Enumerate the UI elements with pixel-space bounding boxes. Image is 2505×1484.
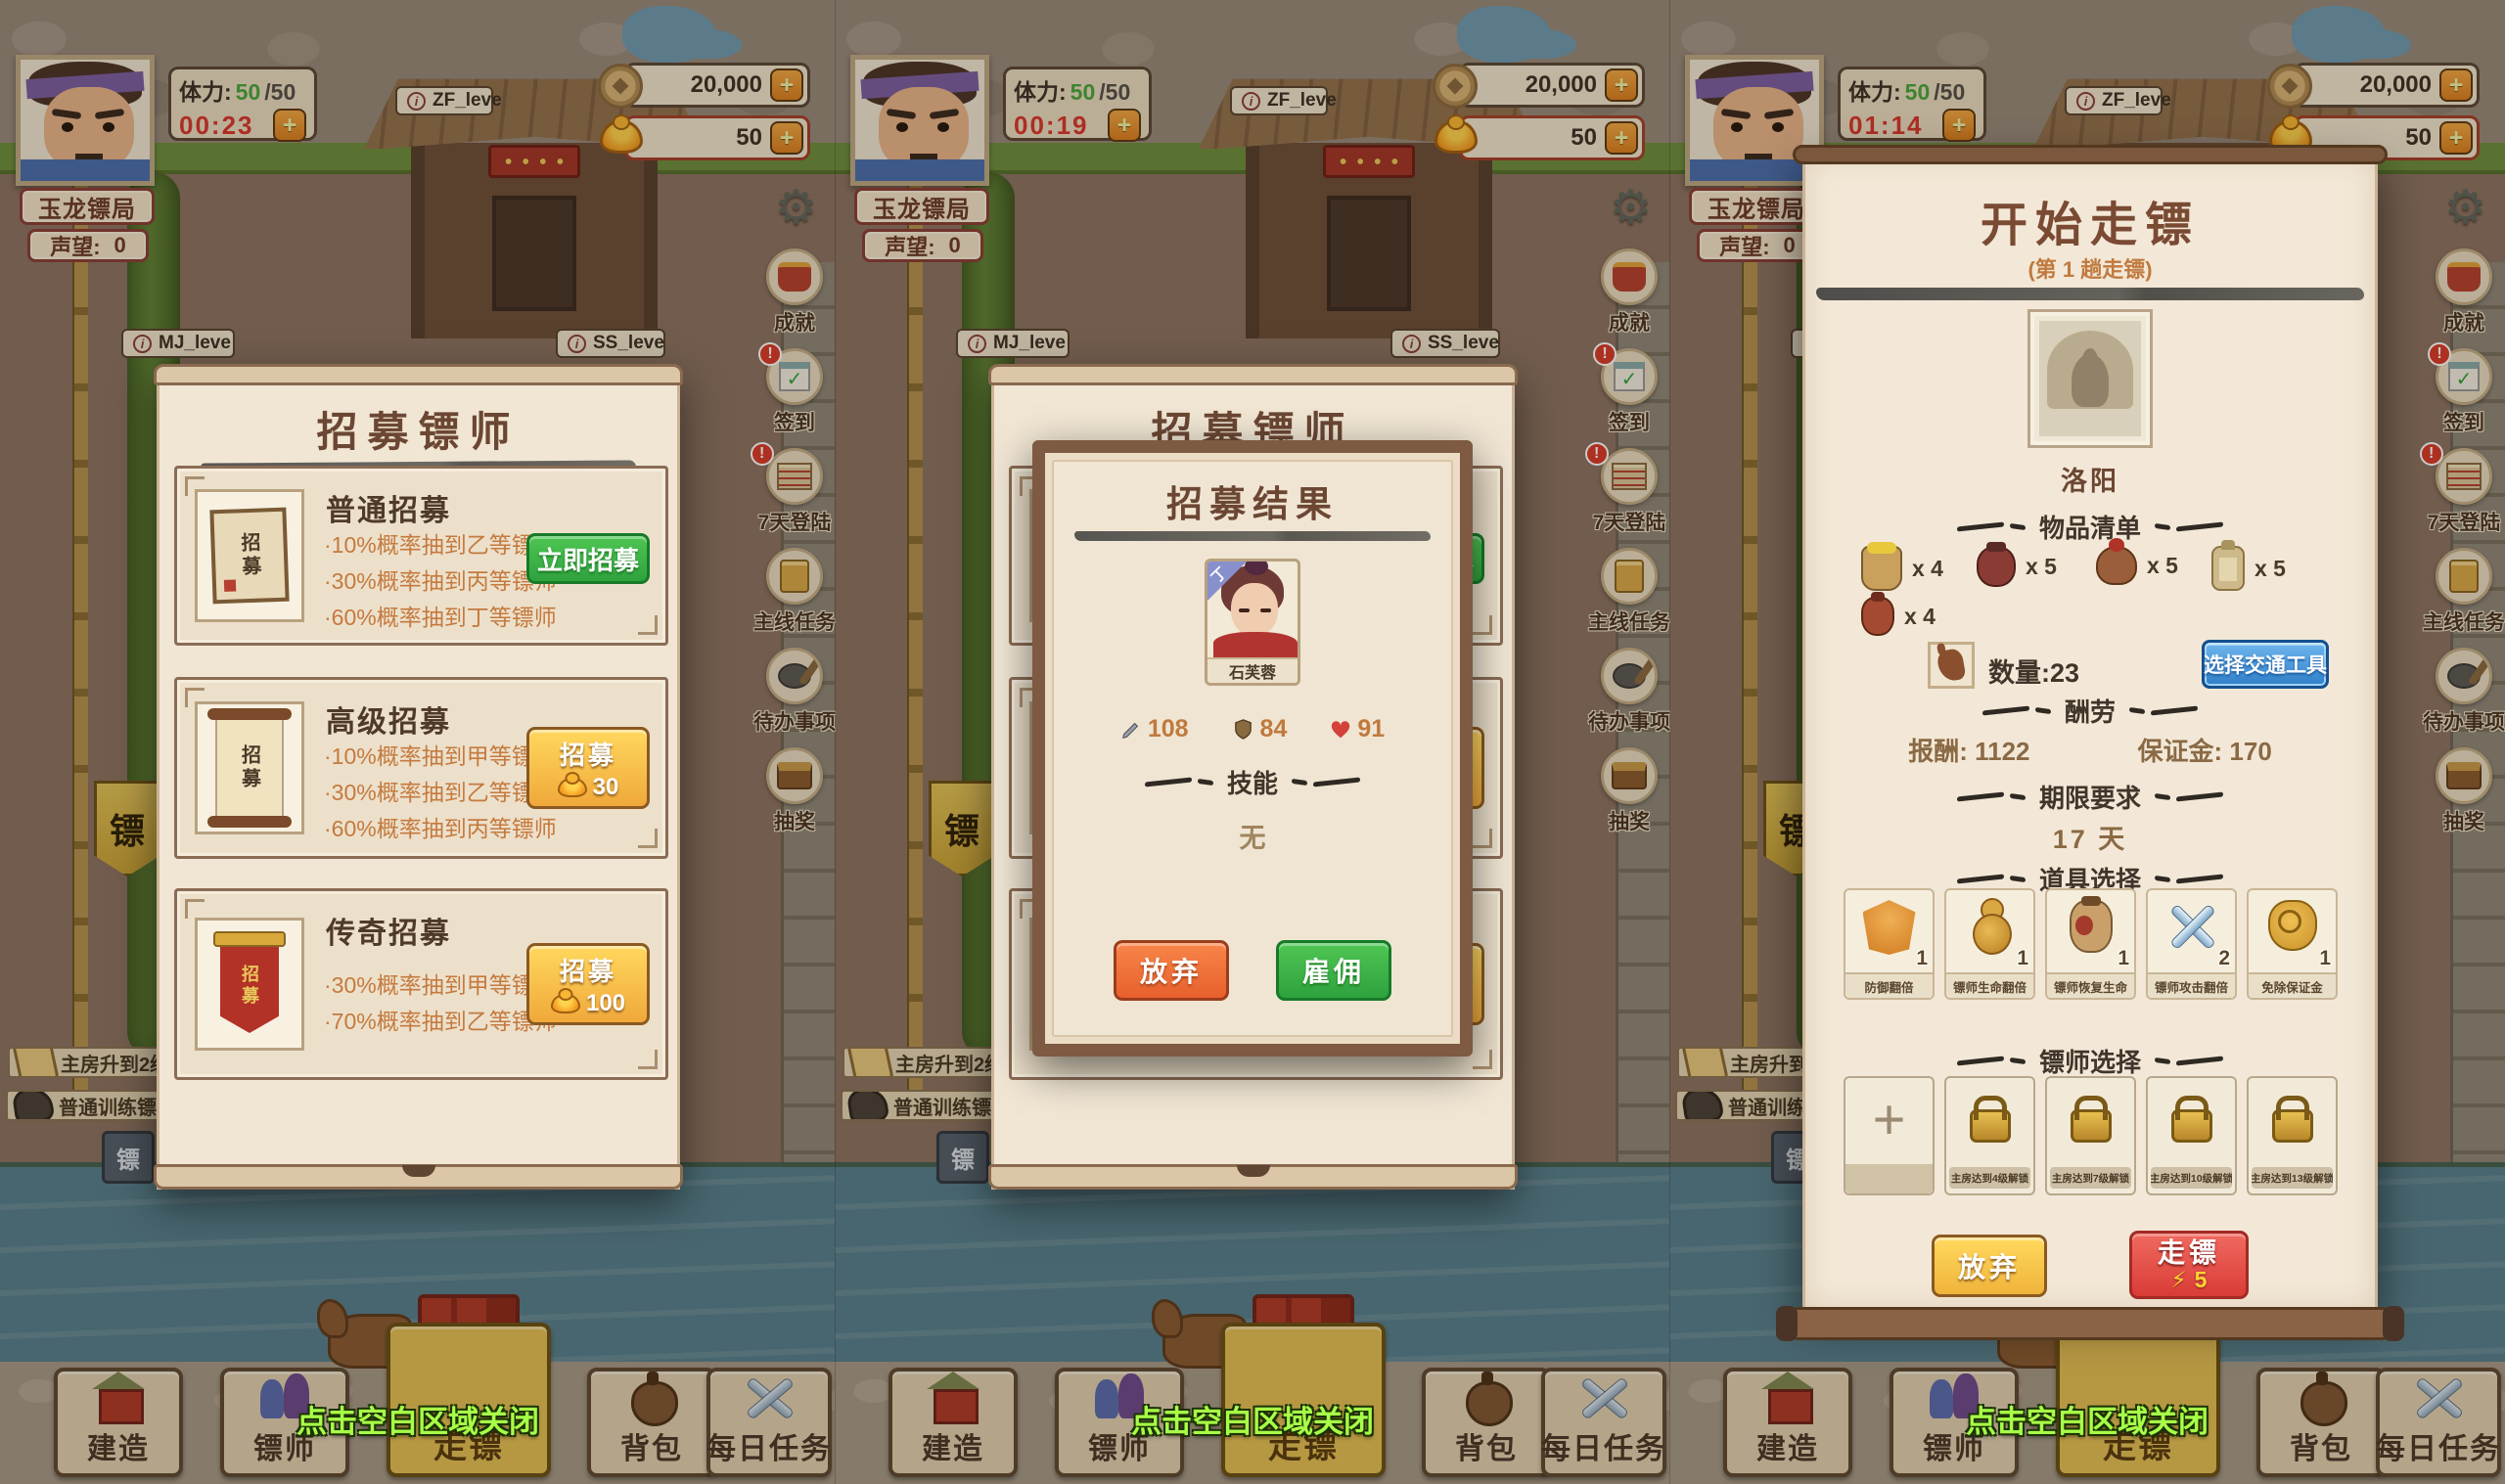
escort-card[interactable]: 丁 石芙蓉	[1205, 559, 1300, 686]
recruit-result-dialog: 招募结果 丁 石芙蓉 108 84 91	[1032, 440, 1473, 1057]
recruit-dialog: 招募镖师 招募 普通招募 ·10%概率抽到乙等镖师 ·30%概率抽到丙等镖师 ·…	[157, 368, 680, 1190]
stats-row: 108 84 91	[1045, 715, 1460, 743]
escort-slot-locked[interactable]: 主房达到13级解锁	[2247, 1076, 2338, 1195]
red-seal	[224, 580, 236, 592]
jar-icon	[1977, 546, 2016, 587]
dialog-title: 开始走镖	[1797, 186, 2384, 254]
pot-icon	[2096, 546, 2137, 585]
panel-start-escort: 镖 主房升到2级 普通训练镖师 镖 玉龙镖局 声望: 0 体力: 50 /50 …	[1669, 0, 2505, 1484]
scroll-top-edge	[988, 364, 1518, 385]
crossed-weapons-icon	[2163, 898, 2220, 955]
gold-ingot-icon	[551, 994, 580, 1013]
card-odds: ·10%概率抽到甲等镖师 ·30%概率抽到乙等镖师 ·60%概率抽到丙等镖师	[324, 739, 557, 847]
go-cost: 5	[2195, 1268, 2208, 1291]
goods-section-header: 物品清单	[1797, 509, 2384, 545]
reward-value: 报酬: 1122	[1908, 732, 2029, 768]
give-up-button[interactable]: 放弃	[1932, 1235, 2047, 1297]
deadline-value: 17 天	[1797, 818, 2384, 856]
lightning-icon: ⚡	[2171, 1268, 2187, 1291]
recruit-now-button[interactable]: 立即招募	[526, 533, 650, 584]
recruit-scroll-icon: 招募	[195, 701, 304, 834]
defense-stat: 84	[1232, 715, 1288, 743]
escort-slot-locked[interactable]: 主房达到4级解锁	[1944, 1076, 2035, 1195]
bottle-icon	[2211, 546, 2245, 591]
item-card-attack-double[interactable]: 2 镖师攻击翻倍	[2146, 888, 2237, 1000]
destination-image	[2027, 309, 2153, 448]
deposit-value: 保证金: 170	[2138, 732, 2272, 768]
small-jar-icon	[1861, 597, 1894, 636]
lock-icon	[2272, 1109, 2313, 1143]
sack-icon	[1861, 546, 1902, 591]
scroll-bottom-edge	[988, 1164, 1518, 1190]
card-title: 传奇招募	[326, 909, 451, 952]
item-card-hp-double[interactable]: 1 镖师生命翻倍	[1944, 888, 2035, 1000]
goods-item: x 4	[1861, 546, 1943, 591]
recruit-gold-button[interactable]: 招募 30	[526, 727, 650, 809]
scroll-bottom-edge	[154, 1164, 683, 1190]
result-parchment	[1052, 460, 1453, 1037]
brush-divider	[1816, 288, 2364, 300]
heart-icon	[1330, 719, 1351, 741]
hp-stat: 91	[1330, 715, 1385, 743]
close-hint-text: 点击空白区域关闭	[296, 1397, 539, 1441]
escort-slot-add[interactable]: +	[1844, 1076, 1935, 1195]
close-hint-text: 点击空白区域关闭	[1966, 1397, 2209, 1441]
cost: 30	[593, 774, 619, 801]
destination-name: 洛阳	[1797, 460, 2384, 498]
recruit-banner-icon: 招募	[195, 918, 304, 1051]
brush-divider	[1074, 531, 1431, 541]
medicine-jar-icon	[2063, 898, 2119, 955]
dialog-subtitle: (第 1 趟走镖)	[1797, 252, 2384, 284]
recruit-card-normal: 招募 普通招募 ·10%概率抽到乙等镖师 ·30%概率抽到丙等镖师 ·60%概率…	[174, 466, 668, 646]
sword-icon	[1120, 719, 1142, 741]
triple-screenshot-stage: 镖 主房升到2级 普通训练镖师 镖 玉龙镖局 声望: 0 体力: 50 /50 …	[0, 0, 2505, 1484]
close-hint-text: 点击空白区域关闭	[1131, 1397, 1374, 1441]
goods-item: x 4	[1861, 597, 1936, 636]
hire-button[interactable]: 雇佣	[1276, 940, 1391, 1001]
card-odds: ·10%概率抽到乙等镖师 ·30%概率抽到丙等镖师 ·60%概率抽到丁等镖师	[324, 527, 557, 636]
attack-stat: 108	[1120, 715, 1189, 743]
item-card-defense[interactable]: 1 防御翻倍	[1844, 888, 1935, 1000]
goods-item: x 5	[2211, 546, 2286, 591]
scroll-bottom-roller	[1787, 1307, 2393, 1340]
skill-section-header: 技能	[1045, 764, 1460, 800]
scroll-top-roller	[1793, 145, 2388, 164]
recruit-card-legendary: 招募 传奇招募 ·30%概率抽到甲等镖师 ·70%概率抽到乙等镖师 招募 100	[174, 888, 668, 1080]
recruit-gold-button[interactable]: 招募 100	[526, 943, 650, 1025]
escort-name: 石芙蓉	[1207, 657, 1298, 683]
goods-item: x 5	[1977, 546, 2057, 587]
armor-icon	[1861, 898, 1918, 955]
pay-section-header: 酬劳	[1797, 693, 2384, 729]
recruit-card-advanced: 招募 高级招募 ·10%概率抽到甲等镖师 ·30%概率抽到乙等镖师 ·60%概率…	[174, 677, 668, 859]
cost: 100	[586, 990, 625, 1017]
pay-values: 报酬: 1122 保证金: 170	[1797, 732, 2384, 768]
card-title: 高级招募	[326, 697, 451, 741]
item-card-heal[interactable]: 1 镖师恢复生命	[2045, 888, 2136, 1000]
escort-slot-locked[interactable]: 主房达到10级解锁	[2146, 1076, 2237, 1195]
gourd-icon	[1962, 898, 2019, 955]
lock-icon	[2171, 1109, 2212, 1143]
shield-icon	[1232, 718, 1254, 741]
skill-none-value: 无	[1045, 817, 1460, 855]
dialog-title: 招募镖师	[159, 399, 677, 459]
go-escort-button[interactable]: 走镖 ⚡5	[2129, 1231, 2249, 1299]
choose-transport-button[interactable]: 选择交通工具	[2202, 640, 2329, 689]
buddha-grotto-art	[2039, 321, 2141, 436]
goods-item: x 5	[2096, 546, 2178, 585]
transport-horse-icon	[1928, 642, 1975, 689]
card-title: 普通招募	[326, 486, 451, 529]
plus-icon: +	[1845, 1092, 1933, 1148]
money-pouch-icon	[2264, 898, 2321, 955]
panel-recruit-list: 镖 主房升到2级 普通训练镖师 镖 玉龙镖局 声望: 0 体力: 50 /50 …	[0, 0, 836, 1484]
escorts-section-header: 镖师选择	[1797, 1043, 2384, 1079]
start-escort-dialog: 开始走镖 (第 1 趟走镖) 洛阳 物品清单 x 4 x 5 x 5 x 5 x…	[1797, 145, 2384, 1340]
recruit-paper-icon: 招募	[195, 489, 304, 622]
item-card-no-deposit[interactable]: 1 免除保证金	[2247, 888, 2338, 1000]
card-odds: ·30%概率抽到甲等镖师 ·70%概率抽到乙等镖师	[324, 967, 557, 1040]
panel-recruit-result: 镖 主房升到2级 普通训练镖师 镖 玉龙镖局 声望: 0 体力: 50 /50 …	[835, 0, 1670, 1484]
deadline-section-header: 期限要求	[1797, 779, 2384, 815]
quantity-label: 数量:23	[1988, 652, 2079, 690]
gold-ingot-icon	[558, 778, 587, 797]
give-up-button[interactable]: 放弃	[1114, 940, 1229, 1001]
lock-icon	[1970, 1109, 2011, 1143]
result-title: 招募结果	[1045, 474, 1460, 527]
escort-slot-locked[interactable]: 主房达到7级解锁	[2045, 1076, 2136, 1195]
lock-icon	[2071, 1109, 2112, 1143]
scroll-top-edge	[154, 364, 683, 385]
